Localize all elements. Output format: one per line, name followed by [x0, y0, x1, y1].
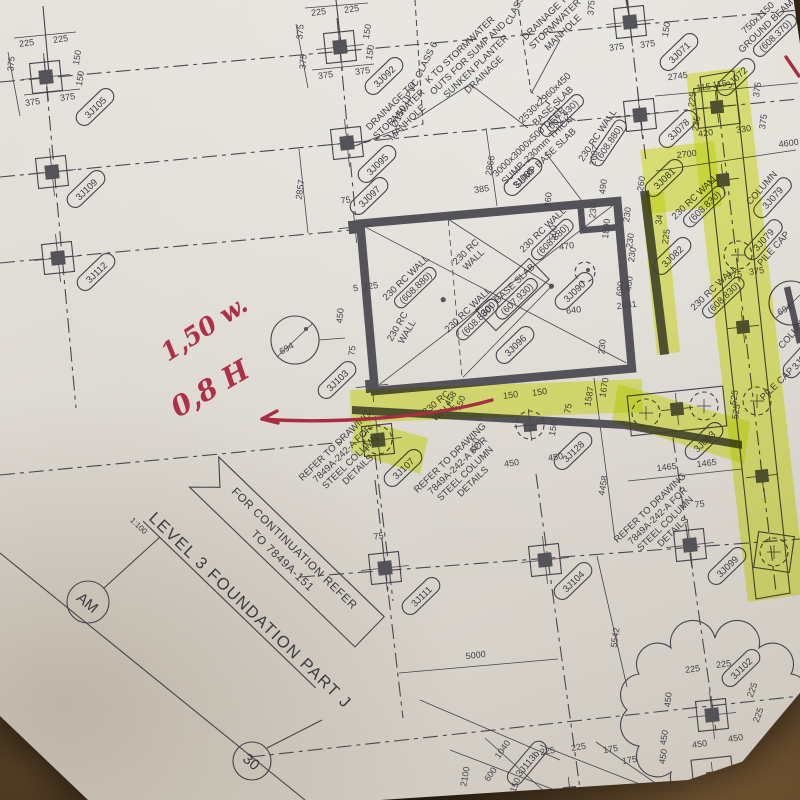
dim: 175: [602, 743, 619, 755]
dim: 375: [297, 54, 308, 70]
continuation-text: FOR CONTINUATION REFER: [229, 486, 359, 612]
dim: 375: [585, 0, 596, 16]
dim: 450: [547, 451, 563, 463]
dim: 225: [684, 663, 700, 675]
dim: 150: [71, 49, 83, 66]
title-block: AM 30 FOR CONTINUATION REFER TO 7849A-15…: [0, 457, 384, 800]
grid-bubble-label: AM: [73, 589, 101, 616]
grid-bubble-am: AM: [67, 537, 160, 623]
dim: 500: [547, 225, 559, 241]
dim: 225: [715, 658, 731, 670]
dim: 225: [18, 37, 34, 49]
photo-of-drawing: 694 694 3J105 3J109 3J112 3J092 3J095 3J…: [0, 0, 800, 800]
dim: 5: [352, 283, 358, 294]
dim: 640: [566, 304, 582, 316]
dim: 75: [347, 345, 358, 356]
continuation-flag: FOR CONTINUATION REFER TO 7849A-151: [190, 457, 385, 647]
grid-bubble-label: 30: [239, 750, 263, 774]
title-scale: 1:100: [128, 516, 149, 537]
dim: 375: [608, 41, 624, 53]
highlighter-marks: [350, 67, 800, 602]
red-arrow-head: [262, 411, 278, 423]
dim: 225: [751, 706, 766, 724]
foundation-plan-drawing: 694 694 3J105 3J109 3J112 3J092 3J095 3J…: [0, 0, 800, 800]
dim: 225: [52, 33, 68, 45]
dim: 175: [621, 754, 638, 766]
dim: 230: [621, 206, 633, 222]
dim: 375: [639, 38, 655, 50]
dim: 225: [539, 745, 556, 757]
pipe-class-note: CLASS 6: [503, 0, 530, 27]
dim: 4600: [778, 137, 799, 149]
dim: 450: [691, 738, 707, 750]
paper-sheet: 694 694 3J105 3J109 3J112 3J092 3J095 3J…: [0, 0, 800, 800]
dim: 450: [658, 729, 670, 746]
dim: 2607: [587, 145, 600, 166]
dim: 375: [317, 69, 333, 81]
red-note-height: 0,8 H: [165, 352, 256, 424]
dim: 230: [587, 203, 599, 219]
dim: 450: [503, 457, 519, 469]
dim: 230: [596, 339, 608, 355]
dim: 150: [364, 44, 376, 61]
dim: 150: [361, 23, 373, 40]
red-tick-mark: [786, 57, 799, 76]
dim: 150: [547, 420, 559, 437]
dim: 260: [542, 192, 554, 208]
dim: 1465: [656, 461, 677, 473]
dim: 1040: [493, 738, 513, 760]
detail-number: 694: [277, 340, 295, 356]
dim: 225: [745, 681, 760, 699]
dim: 2745: [667, 70, 688, 82]
dim: 450: [657, 748, 669, 765]
dim: 150: [508, 776, 523, 794]
dim: 375: [59, 91, 75, 103]
dim: 5542: [609, 627, 622, 648]
dim: 490: [597, 178, 609, 194]
dim: 225: [310, 6, 326, 18]
dim: 375: [5, 56, 16, 72]
dim: 230: [626, 246, 638, 262]
dim: 230: [624, 232, 636, 248]
drawing-title: LEVEL 3 FOUNDATION PART J 1:100: [128, 501, 355, 721]
dim: 450: [334, 308, 346, 324]
dim: 75: [694, 498, 705, 509]
dim: 225: [362, 280, 378, 292]
dim: 375: [354, 65, 370, 77]
dim: 375: [24, 96, 40, 108]
dim: 385: [473, 183, 489, 195]
title-text: LEVEL 3 FOUNDATION PART J: [145, 509, 355, 712]
dim: 2031: [616, 299, 637, 311]
dim: 1800: [600, 218, 612, 239]
dim: 75: [340, 194, 351, 205]
dim: 450: [662, 692, 674, 708]
dim: 1465: [696, 457, 717, 469]
dim: 5000: [465, 649, 486, 661]
dim: 470: [558, 240, 574, 252]
dim: 375: [751, 81, 763, 97]
dim: 460: [623, 276, 635, 292]
dim: 2100: [458, 766, 471, 787]
dim: 150: [660, 21, 672, 38]
dim: 75: [373, 530, 384, 541]
dim: 150: [74, 70, 86, 87]
dim: 375: [294, 24, 305, 40]
dim: 225: [343, 3, 359, 15]
dim: 450: [727, 732, 743, 744]
dim: 225: [570, 741, 587, 753]
dim: 375: [757, 113, 769, 129]
dim: 4458: [596, 475, 609, 496]
